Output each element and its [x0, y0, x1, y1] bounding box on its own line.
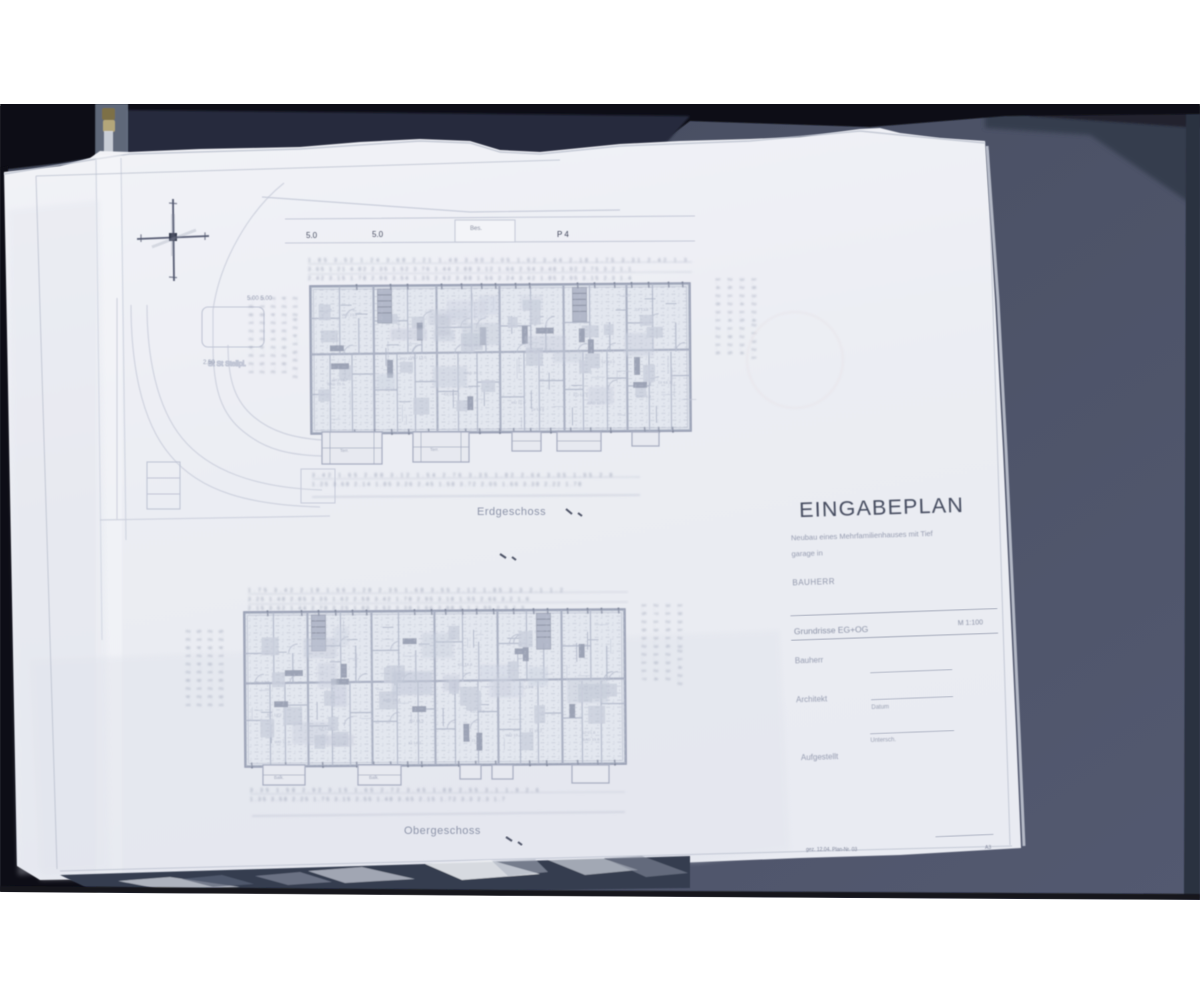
svg-text:1.4 2.8 2.2 1.8 3.2: 1.4 2.8 2.2 1.8 3.2: [186, 628, 192, 706]
svg-text:M 1:100: M 1:100: [958, 619, 984, 627]
svg-text:garage in: garage in: [791, 548, 823, 558]
svg-text:1.35 3.58 2.25 1.75 3.15 2.55: 1.35 3.58 2.25 1.75 3.15 2.55 1.48 3.65 …: [250, 797, 507, 803]
svg-text:3.25 1.48 2.85 3.35 1.62 2.58: 3.25 1.48 2.85 3.35 1.62 2.58 3.42 1.78 …: [248, 597, 531, 603]
svg-text:gez. 12.04. Plan-Nr. 03: gez. 12.04. Plan-Nr. 03: [806, 847, 857, 853]
svg-text:Architekt: Architekt: [796, 694, 828, 704]
svg-text:BAUHERR: BAUHERR: [792, 577, 835, 587]
svg-text:Datum: Datum: [871, 704, 889, 711]
svg-text:P 4: P 4: [557, 230, 569, 239]
svg-text:Aufgestellt: Aufgestellt: [801, 752, 839, 762]
svg-text:Balk.: Balk.: [369, 775, 379, 780]
svg-text:3.3 2.1 1.8 2.6 2.2: 3.3 2.1 1.8 2.6 2.2: [208, 628, 214, 706]
svg-text:1.5 2.9 3.2 2.1 1.7: 1.5 2.9 3.2 2.1 1.7: [640, 604, 646, 682]
svg-text:1.9 3.1 2.32 1.4 2.2: 1.9 3.1 2.32 1.4 2.2: [676, 604, 682, 687]
svg-text:Bes.: Bes.: [470, 226, 482, 232]
svg-text:5.0: 5.0: [306, 231, 318, 240]
svg-text:3.1 2.5 1.6 2.3 3.2: 3.1 2.5 1.6 2.3 3.2: [664, 604, 670, 682]
svg-text:5.0: 5.0: [372, 230, 384, 239]
svg-text:Terr.: Terr.: [340, 448, 349, 453]
svg-text:2.6 1.2 3.4 1.8 2.5: 2.6 1.2 3.4 1.8 2.5: [726, 278, 732, 356]
svg-text:2.50: 2.50: [203, 360, 215, 366]
svg-text:Bauherr: Bauherr: [795, 655, 824, 665]
svg-text:1.8 3.2 2.42 1.3 2.1: 1.8 3.2 2.42 1.3 2.1: [750, 278, 756, 361]
svg-text:3.2 2.4 1.5 2.2 3.4: 3.2 2.4 1.5 2.2 3.4: [738, 278, 744, 356]
svg-text:3.65 1.21 4.82 2.35 1.52 3.76: 3.65 1.21 4.82 2.35 1.52 3.76 1.44 2.88 …: [308, 267, 633, 273]
svg-text:3.1 2.2 1.6 2.4 2.2: 3.1 2.2 1.6 2.4 2.2: [271, 295, 277, 373]
svg-text:1.25 3.68 2.14 1.85 3.26 2.45: 1.25 3.68 2.14 1.85 3.26 2.45 1.58 3.72 …: [312, 482, 583, 488]
svg-text:1.6 2.9 3.1 1.4 2.5: 1.6 2.9 3.1 1.4 2.5: [219, 628, 225, 706]
svg-text:1.8 2.6 3.3 1.2 2.4: 1.8 2.6 3.3 1.2 2.4: [282, 295, 288, 373]
svg-text:2.7 1.3 3.3 1.9 2.4: 2.7 1.3 3.3 1.9 2.4: [652, 604, 658, 682]
svg-text:Erdgeschoss: Erdgeschoss: [477, 506, 546, 518]
svg-text:Balk.: Balk.: [274, 775, 284, 780]
svg-text:2.42 3.15 1.78 2.96 3.54 1.35: 2.42 3.15 1.78 2.96 3.54 1.35 2.62 3.88 …: [308, 276, 633, 282]
svg-text:Obergeschoss: Obergeschoss: [404, 825, 481, 837]
svg-text:2.5 1.4 3.2 2.8 1.1: 2.5 1.4 3.2 2.8 1.1: [260, 295, 266, 373]
svg-text:2.2 1.6 3.4 2.4 1.5: 2.2 1.6 3.4 2.4 1.5: [197, 628, 203, 706]
svg-text:Terr.: Terr.: [430, 447, 439, 452]
svg-text:1.4 2.8 3.1 2.2 1.6: 1.4 2.8 3.1 2.2 1.6: [714, 278, 720, 356]
svg-text:1.2 3.4 2.2 1.8 3.1: 1.2 3.4 2.2 1.8 3.1: [249, 295, 255, 373]
svg-text:A3: A3: [985, 845, 991, 851]
svg-text:Untersch.: Untersch.: [870, 737, 896, 744]
svg-text:2.2 3.5 1.4 2.62 1.2: 2.2 3.5 1.4 2.62 1.2: [293, 295, 299, 378]
